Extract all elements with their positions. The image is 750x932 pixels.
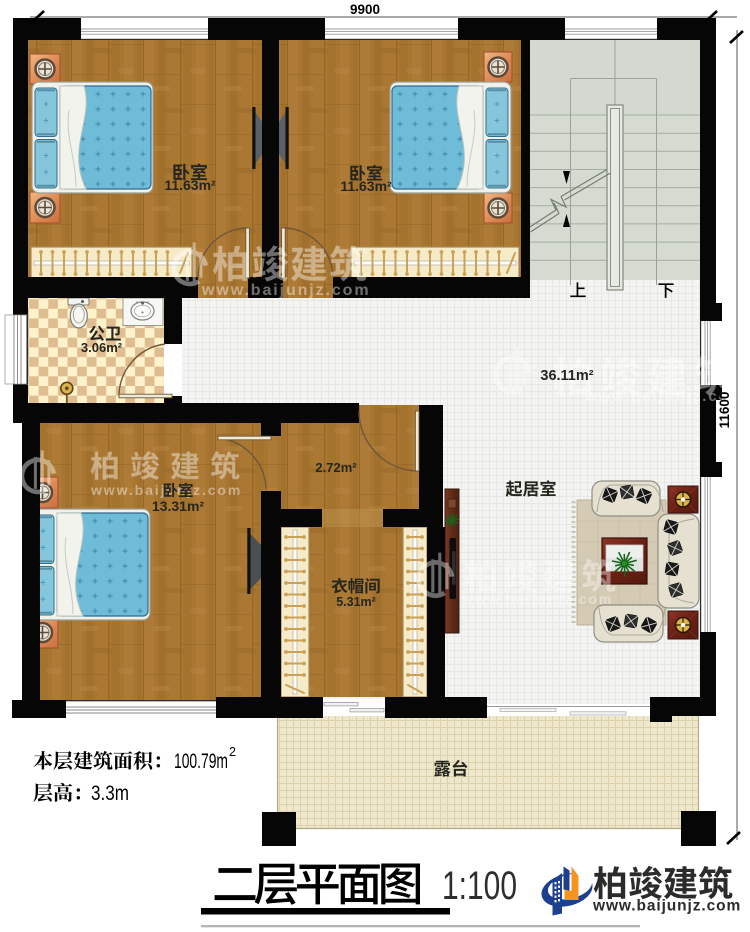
svg-text:2: 2 <box>229 745 236 759</box>
svg-text:3.06m²: 3.06m² <box>81 340 123 355</box>
svg-text:www.baijunjz.com: www.baijunjz.com <box>201 282 371 299</box>
svg-text:www.baijunjz.com: www.baijunjz.com <box>592 898 741 915</box>
svg-text:1:100: 1:100 <box>442 864 517 908</box>
svg-text:www.baijunjz.com: www.baijunjz.com <box>461 591 613 607</box>
svg-text:11600: 11600 <box>717 392 732 429</box>
svg-text:9900: 9900 <box>350 2 380 17</box>
svg-text:2.72m²: 2.72m² <box>315 460 357 475</box>
svg-text:13.31m²: 13.31m² <box>152 498 204 514</box>
svg-text:5.31m²: 5.31m² <box>336 595 376 609</box>
svg-text:11.63m²: 11.63m² <box>340 178 392 194</box>
svg-text:100.79m: 100.79m <box>174 750 228 773</box>
svg-text:36.11m²: 36.11m² <box>540 368 593 384</box>
svg-text:3.3m: 3.3m <box>91 782 129 805</box>
svg-text:11.63m²: 11.63m² <box>164 177 216 193</box>
